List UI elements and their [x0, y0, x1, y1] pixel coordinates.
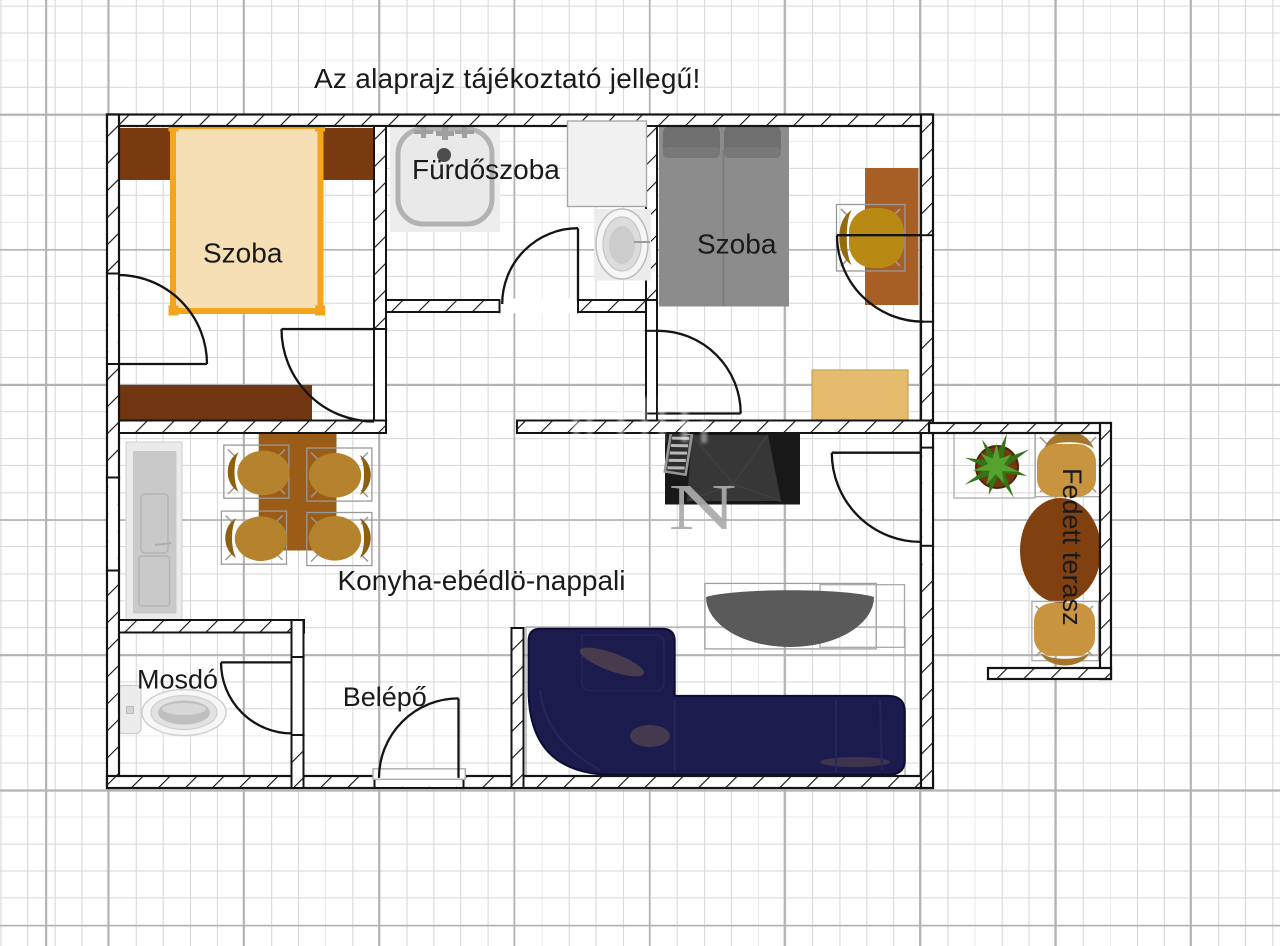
- svg-text:N: N: [669, 470, 737, 544]
- svg-text:Mosdó: Mosdó: [137, 665, 218, 695]
- svg-text:Fedett terasz: Fedett terasz: [1057, 468, 1087, 626]
- svg-text:Belépő: Belépő: [343, 682, 427, 712]
- svg-text:Szoba: Szoba: [697, 229, 777, 260]
- svg-text:Az alaprajz tájékoztató jelleg: Az alaprajz tájékoztató jellegű!: [314, 63, 701, 94]
- svg-text:Konyha-ebédlö-nappali: Konyha-ebédlö-nappali: [338, 565, 626, 596]
- svg-text:Szoba: Szoba: [203, 238, 283, 269]
- svg-text:Fürdőszoba: Fürdőszoba: [412, 154, 560, 185]
